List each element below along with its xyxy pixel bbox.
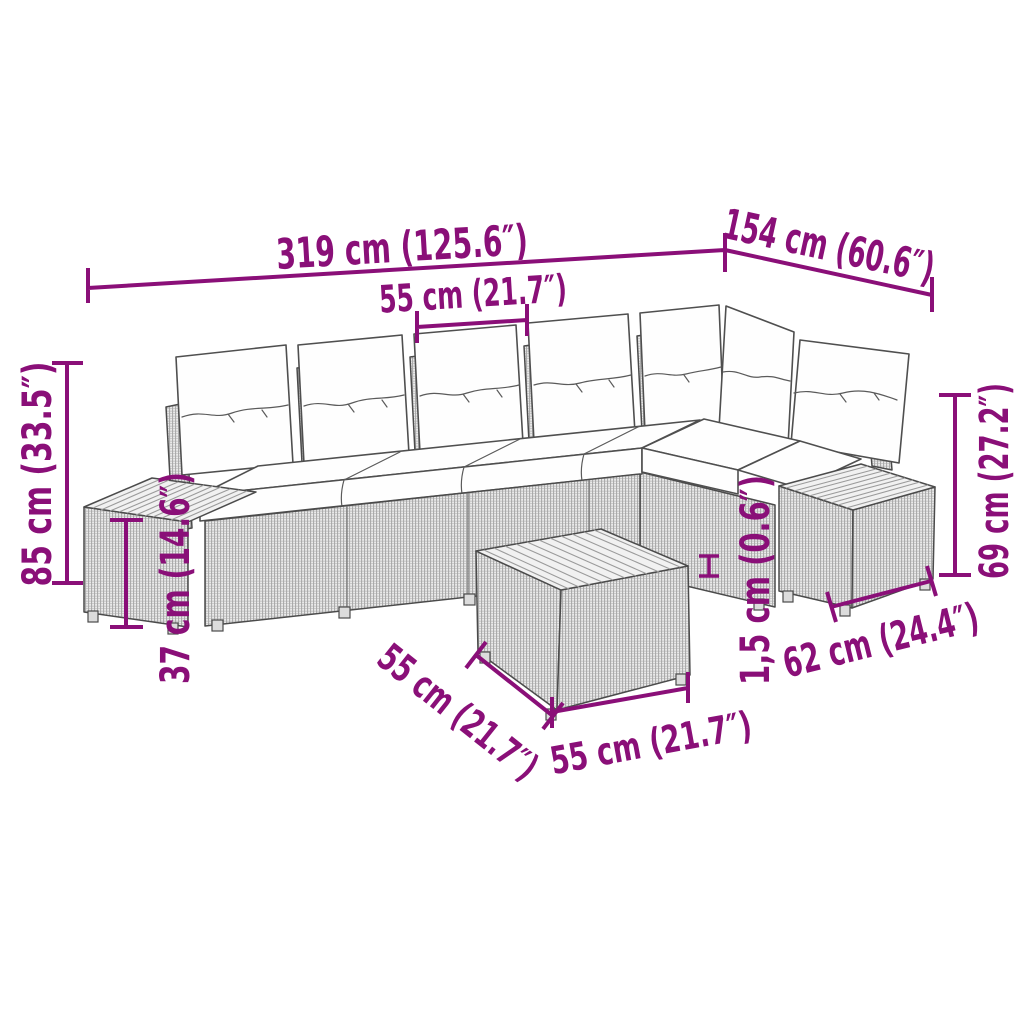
dim-side-section-height-line — [939, 395, 971, 575]
sofa-foot — [464, 594, 475, 605]
dim-seat-width-label: 55 cm (21.7″) — [378, 266, 568, 321]
dim-side-table-width-label: 62 cm (24.4″) — [778, 594, 983, 687]
table-foot — [840, 605, 850, 616]
product-dimension-diagram: 319 cm (125.6″) 154 cm (60.6″) 55 cm (21… — [0, 0, 1024, 1024]
table-foot — [783, 591, 793, 602]
table-foot — [676, 674, 686, 685]
right-side-table — [779, 464, 935, 616]
dim-total-width-label: 319 cm (125.6″) — [275, 215, 529, 279]
dim-tabletop-thickness-label: 1,5 cm (0.6″) — [733, 475, 779, 685]
dim-side-depth: 154 cm (60.6″) — [719, 199, 940, 312]
dim-side-section-height: 69 cm (27.2″) — [939, 383, 1018, 579]
back-cushion — [414, 325, 523, 453]
back-cushion — [528, 314, 635, 442]
back-cushion — [176, 345, 293, 475]
dim-seat-height-label: 37 cm (14.6″) — [153, 472, 199, 684]
table-foot — [88, 611, 98, 622]
dim-side-depth-label: 154 cm (60.6″) — [719, 199, 940, 293]
sofa-foot — [339, 607, 350, 618]
dim-side-section-height-label: 69 cm (27.2″) — [972, 383, 1018, 579]
dim-overall-height-label: 85 cm (33.5″) — [15, 362, 61, 587]
sofa-foot — [212, 620, 223, 631]
dim-overall-height: 85 cm (33.5″) — [15, 362, 83, 587]
back-cushion — [640, 305, 724, 432]
sofa-dimension-drawing: 319 cm (125.6″) 154 cm (60.6″) 55 cm (21… — [0, 0, 1024, 1024]
dim-coffee-table-width-label: 55 cm (21.7″) — [547, 703, 756, 783]
back-cushion — [298, 335, 409, 464]
